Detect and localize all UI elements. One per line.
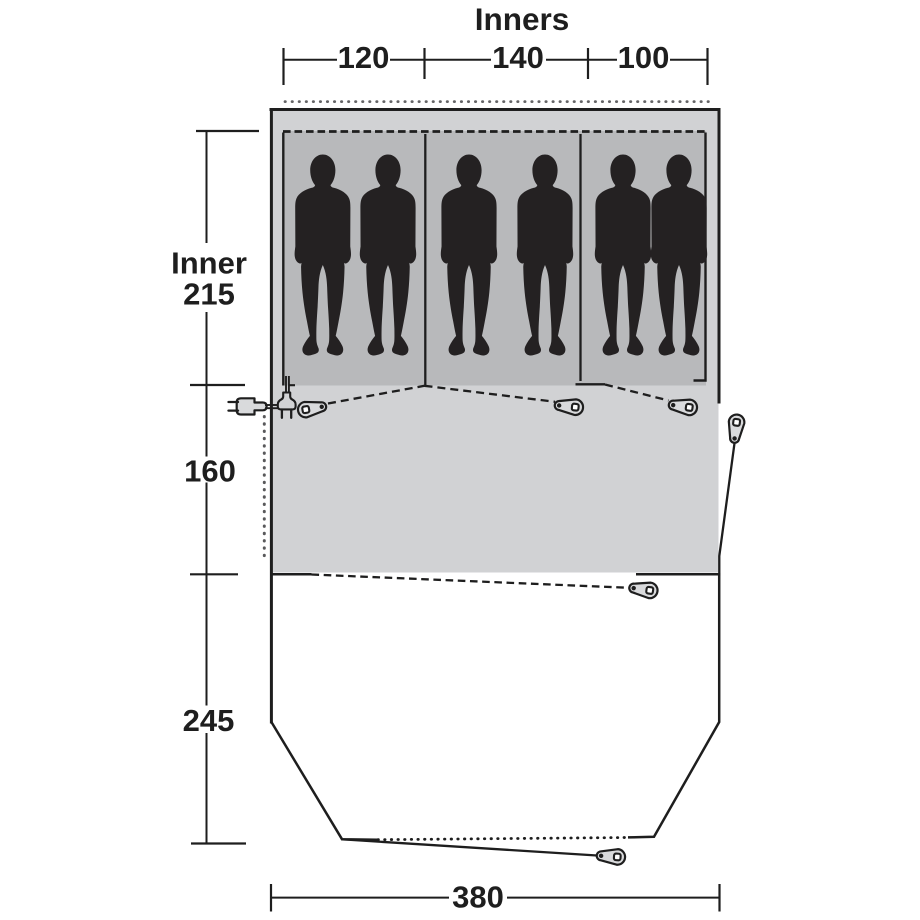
svg-text:Inner: Inner: [171, 245, 247, 280]
svg-text:160: 160: [184, 453, 236, 488]
svg-text:380: 380: [452, 879, 504, 914]
svg-text:140: 140: [492, 40, 544, 75]
svg-text:Inners: Inners: [475, 1, 570, 37]
svg-text:245: 245: [183, 703, 235, 738]
svg-text:215: 215: [183, 277, 235, 312]
svg-text:100: 100: [618, 40, 670, 75]
svg-text:120: 120: [338, 40, 390, 75]
